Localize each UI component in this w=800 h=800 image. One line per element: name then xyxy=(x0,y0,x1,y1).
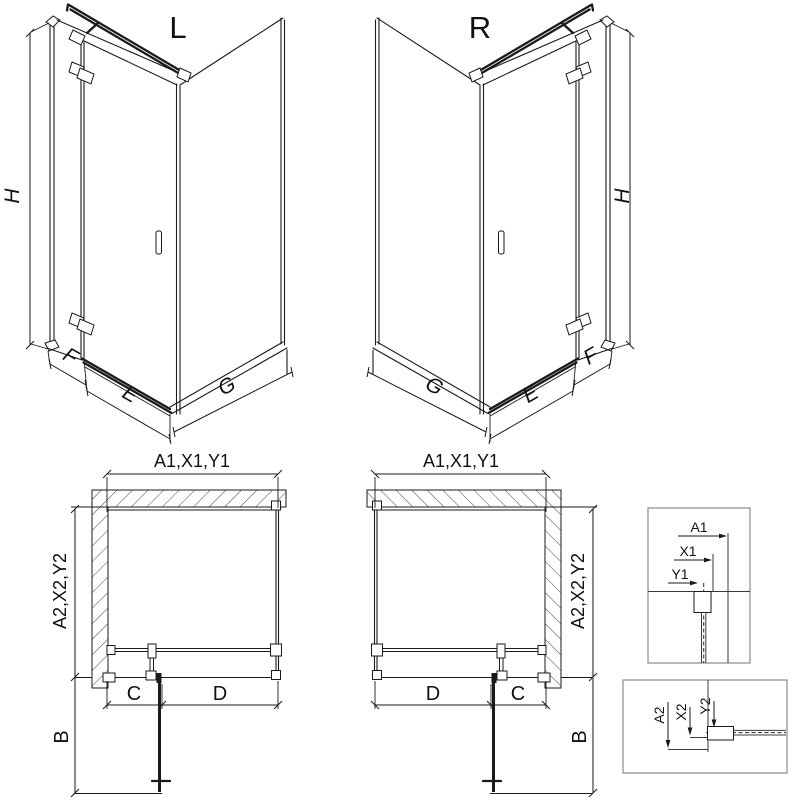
plan-left-top-dim-label: A1,X1,Y1 xyxy=(154,451,230,471)
a2-dimension-line xyxy=(71,505,79,681)
door-top-edge xyxy=(82,40,177,85)
stabilizer-bar-end-cap xyxy=(67,5,68,11)
detail-depth-section: A2 X2 Y2 xyxy=(623,680,787,773)
front-wall-profile xyxy=(103,673,115,682)
side-wall xyxy=(92,507,108,688)
shower-enclosure-technical-diagram: L H F E G R H F E G xyxy=(0,0,800,800)
a2-dimension-line xyxy=(589,505,597,681)
corner-post xyxy=(177,84,181,414)
bar-wall-bracket xyxy=(107,646,115,655)
right-view-title: R xyxy=(469,10,491,45)
plan-right-c-label: C xyxy=(511,683,525,705)
detail-box xyxy=(623,680,787,773)
plan-right-top-dim-label: A1,X1,Y1 xyxy=(423,451,499,471)
wall-profile-section xyxy=(694,592,711,613)
corner-connector-top xyxy=(272,501,281,510)
plan-left-b-label: B xyxy=(51,730,73,743)
door-hinge-edge xyxy=(81,40,84,358)
dim-label-g-right: G xyxy=(421,372,446,400)
door-handle xyxy=(156,231,162,254)
a1-dimension-line xyxy=(103,470,282,478)
hinge-foot-bracket xyxy=(146,671,156,680)
detail-a1-label: A1 xyxy=(690,519,707,535)
side-panel-top-edge xyxy=(180,18,283,85)
enclosure-3d-linework xyxy=(26,5,293,445)
dim-label-f-left: F xyxy=(59,343,83,370)
side-panel-right-edge xyxy=(281,18,285,345)
wall-profile-section xyxy=(708,727,734,741)
bar-panel-connector xyxy=(271,644,282,656)
stabilizer-bar-plan xyxy=(115,649,271,652)
dim-label-g-left: G xyxy=(214,372,239,400)
front-corner-connector xyxy=(272,671,281,680)
bar-tee-connector xyxy=(148,644,156,658)
detail-width-section: A1 X1 Y1 xyxy=(648,508,750,663)
detail-y1-label: Y1 xyxy=(671,566,688,582)
bar-corner-connector xyxy=(177,68,191,82)
dim-label-height-left: H xyxy=(1,188,24,204)
left-view-title: L xyxy=(169,10,186,45)
plan-view-linework xyxy=(92,470,286,792)
detail-y2-label: Y2 xyxy=(697,697,713,714)
right-3d-labels: R H F E G xyxy=(421,10,634,408)
plan-right-side-dim-label: A2,X2,Y2 xyxy=(568,553,588,629)
plan-right-b-label: B xyxy=(569,730,591,743)
dim-label-height-right: H xyxy=(611,188,634,204)
plan-left-d-label: D xyxy=(213,683,227,705)
plan-left-c-label: C xyxy=(127,683,141,705)
height-extension-lines xyxy=(31,23,49,349)
bar-wall-clamp xyxy=(69,30,85,45)
back-wall xyxy=(92,490,286,507)
detail-x1-label: X1 xyxy=(679,543,696,559)
height-dimension-line xyxy=(26,29,34,349)
wall-profile-top-cap xyxy=(46,16,60,27)
enclosure-3d-linework-mirrored xyxy=(367,5,634,445)
hinge-stem-plan xyxy=(150,658,154,671)
plan-right-d-label: D xyxy=(426,683,440,705)
wall-profile xyxy=(50,21,54,348)
plan-left-side-dim-label: A2,X2,Y2 xyxy=(50,553,70,629)
plan-view-linework-mirrored xyxy=(367,470,561,792)
detail-a2-label: A2 xyxy=(651,706,667,723)
g-dimension-line xyxy=(173,367,293,437)
dim-label-f-right: F xyxy=(579,343,603,370)
bar-stem xyxy=(87,23,98,33)
detail-x2-label: X2 xyxy=(673,703,689,720)
